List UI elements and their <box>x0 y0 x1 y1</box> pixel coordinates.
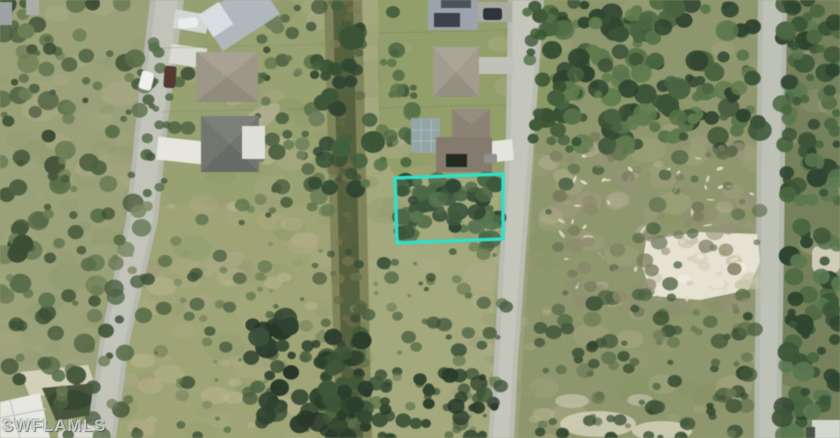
pool-enclosure <box>411 118 440 153</box>
mls-watermark: SWFLAMLS <box>2 417 106 434</box>
solar-panels <box>434 13 460 27</box>
building-partial <box>812 420 840 438</box>
car <box>178 17 199 29</box>
building-partial <box>26 0 39 15</box>
driveway <box>477 57 515 74</box>
car <box>483 8 502 20</box>
aerial-listing-photo: SWFLAMLS <box>0 0 840 438</box>
car <box>163 66 177 89</box>
car <box>484 154 497 163</box>
patio <box>242 126 265 159</box>
building-partial <box>0 2 12 25</box>
driveway <box>156 137 204 165</box>
lanai <box>446 154 467 167</box>
satellite-image <box>0 0 840 438</box>
